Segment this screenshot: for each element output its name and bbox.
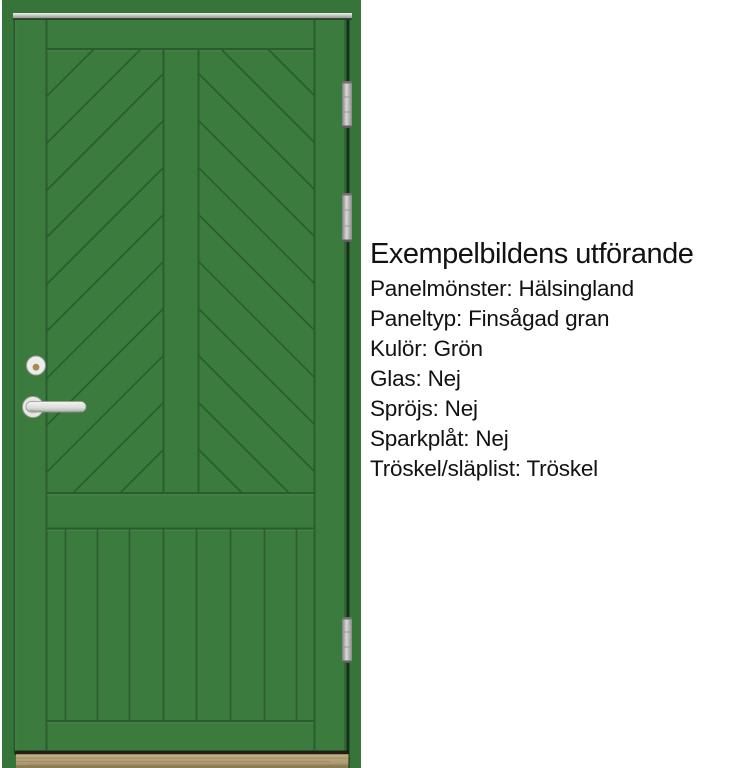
spec-line-panelmonster: Panelmönster: Hälsingland (370, 274, 736, 304)
spec-line-troskel: Tröskel/släplist: Tröskel (370, 454, 736, 484)
door-image (0, 0, 362, 768)
spec-line-sprojs: Spröjs: Nej (370, 394, 736, 424)
hinge-top (342, 81, 352, 128)
product-card: Exempelbildens utförande Panelmönster: H… (0, 0, 738, 768)
spec-line-sparkplat: Sparkplåt: Nej (370, 424, 736, 454)
hinge-bottom (342, 617, 352, 663)
drip-strip (13, 13, 352, 20)
spec-line-kulor: Kulör: Grön (370, 334, 736, 364)
door-leaf (0, 19, 362, 751)
lock-cylinder (27, 356, 46, 375)
hinge-middle (342, 193, 352, 242)
spec-line-paneltyp: Paneltyp: Finsågad gran (370, 304, 736, 334)
threshold (15, 751, 349, 768)
spec-panel: Exempelbildens utförande Panelmönster: H… (370, 234, 736, 484)
spec-line-glas: Glas: Nej (370, 364, 736, 394)
spec-title: Exempelbildens utförande (370, 234, 736, 274)
